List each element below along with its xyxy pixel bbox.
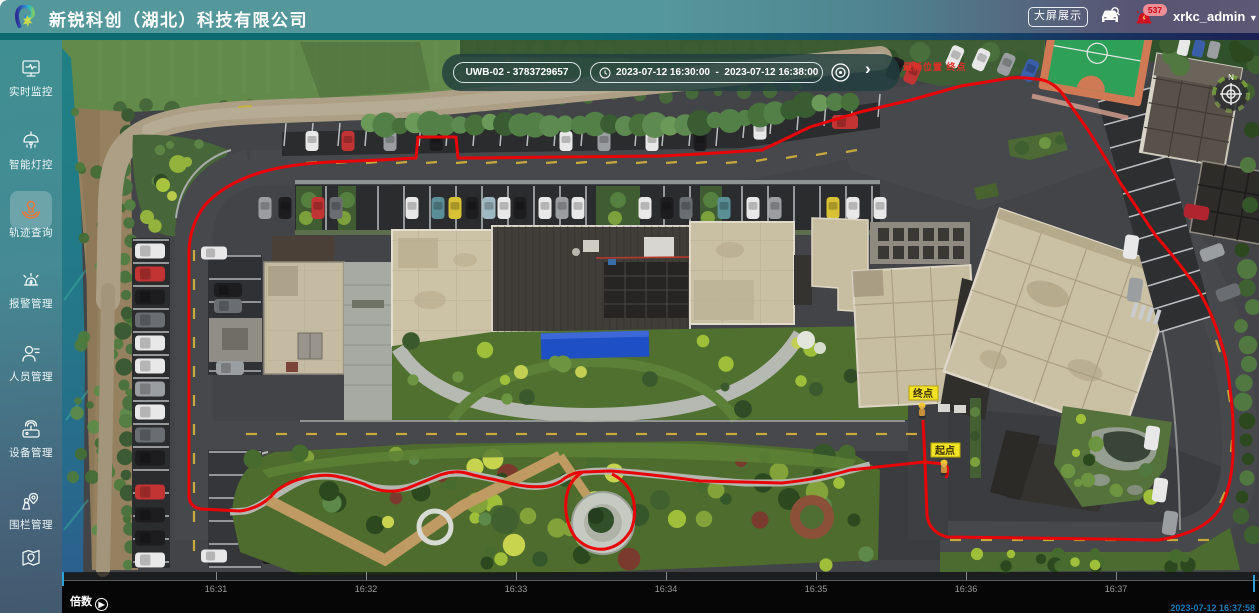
svg-text:N: N — [1228, 73, 1234, 82]
svg-text:起点: 起点 — [934, 444, 955, 457]
svg-text:终点: 终点 — [913, 387, 933, 400]
